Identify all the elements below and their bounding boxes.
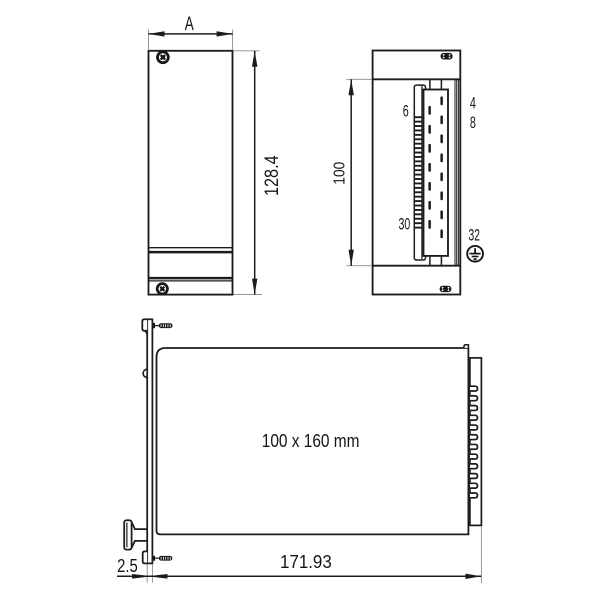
svg-text:100 x 160 mm: 100 x 160 mm	[262, 430, 360, 451]
svg-text:100: 100	[331, 161, 348, 184]
svg-text:2.5: 2.5	[117, 555, 138, 576]
svg-text:4: 4	[470, 94, 476, 113]
svg-text:32: 32	[469, 225, 480, 244]
svg-text:128.4: 128.4	[261, 155, 283, 196]
svg-text:6: 6	[403, 102, 409, 121]
svg-text:171.93: 171.93	[280, 551, 332, 572]
svg-text:30: 30	[399, 214, 411, 233]
svg-text:8: 8	[470, 113, 476, 132]
svg-text:A: A	[185, 14, 194, 35]
